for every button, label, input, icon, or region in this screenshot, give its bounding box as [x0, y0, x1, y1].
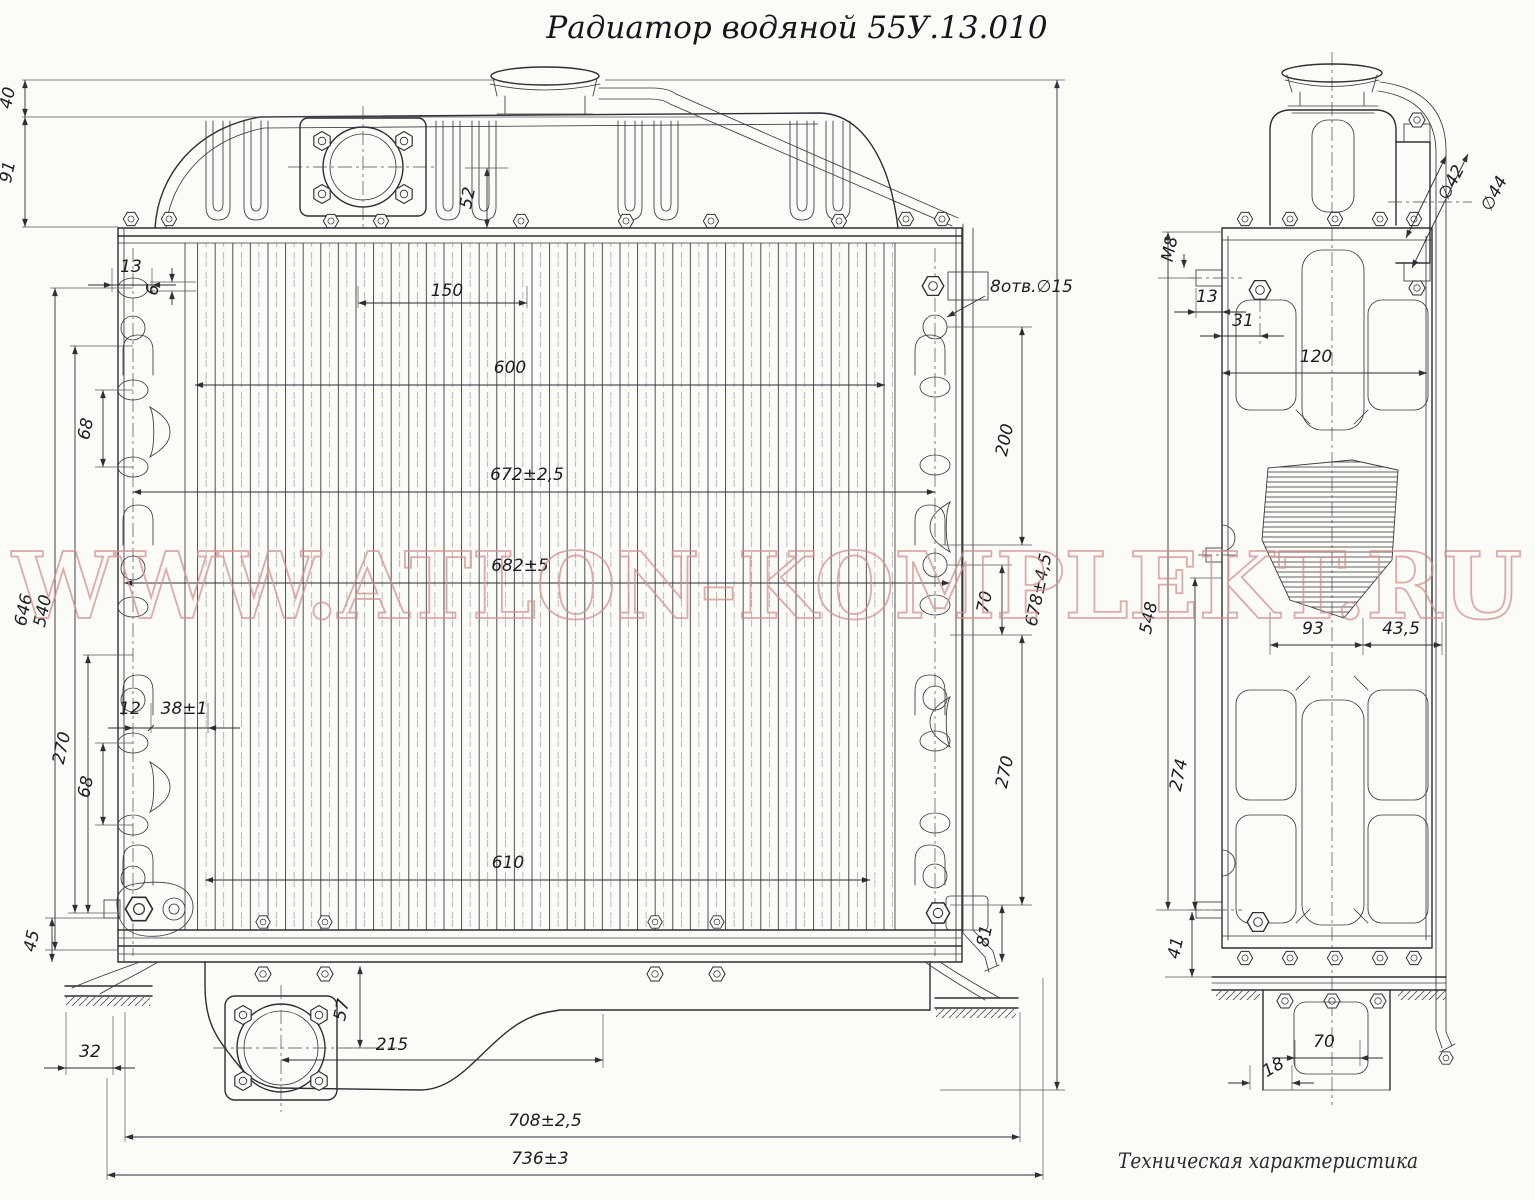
dim-31: 31 [1232, 311, 1254, 331]
dim-70-side: 70 [1313, 1032, 1335, 1052]
dim-holes-note: 8отв.∅15 [990, 277, 1073, 297]
dim-736: 736±3 [511, 1149, 569, 1169]
watermark: WWW.ATLON-KOMPLEKT.RU [11, 532, 1522, 640]
dim-13-side: 13 [1196, 287, 1218, 307]
radiator-blueprint: Радиатор водяной 55У.13.010 [0, 0, 1535, 1200]
dim-708: 708±2,5 [508, 1111, 582, 1131]
dim-610: 610 [492, 853, 524, 873]
dim-150: 150 [431, 281, 463, 301]
dim-13: 13 [120, 257, 142, 277]
dim-120: 120 [1300, 347, 1332, 367]
dim-215: 215 [376, 1035, 408, 1055]
dim-32: 32 [79, 1042, 101, 1062]
dim-672: 672±2,5 [490, 465, 564, 485]
dim-38: 38±1 [161, 699, 208, 719]
dim-600: 600 [494, 358, 526, 378]
footer-note: Техническая характеристика [1118, 1149, 1418, 1173]
dim-12: 12 [119, 699, 141, 719]
drawing-title: Радиатор водяной 55У.13.010 [545, 10, 1047, 46]
